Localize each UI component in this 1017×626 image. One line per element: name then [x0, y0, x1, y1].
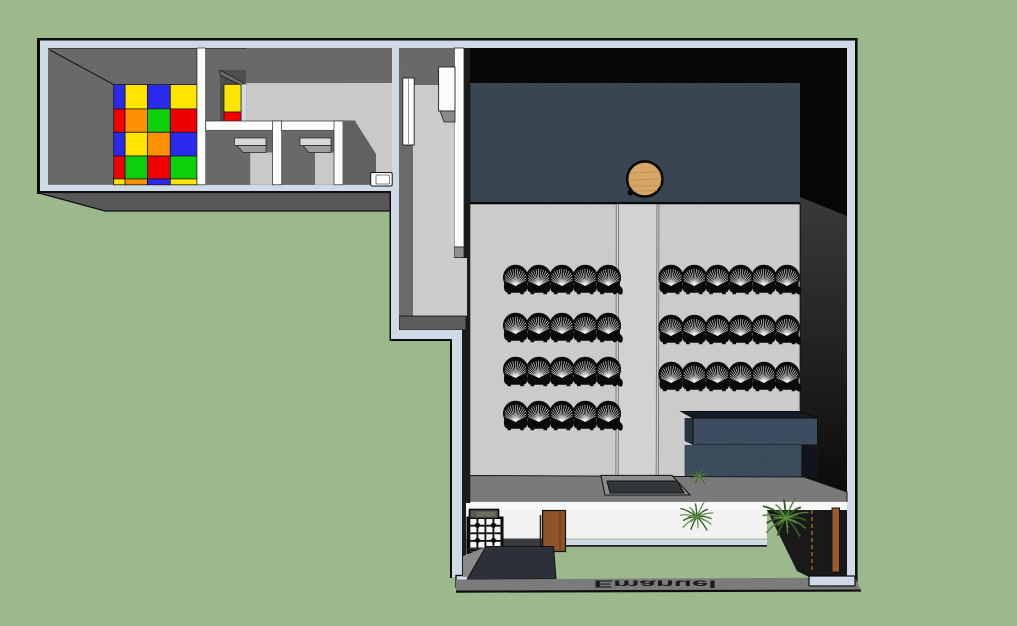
svg-text:Emanuel: Emanuel — [593, 578, 716, 589]
